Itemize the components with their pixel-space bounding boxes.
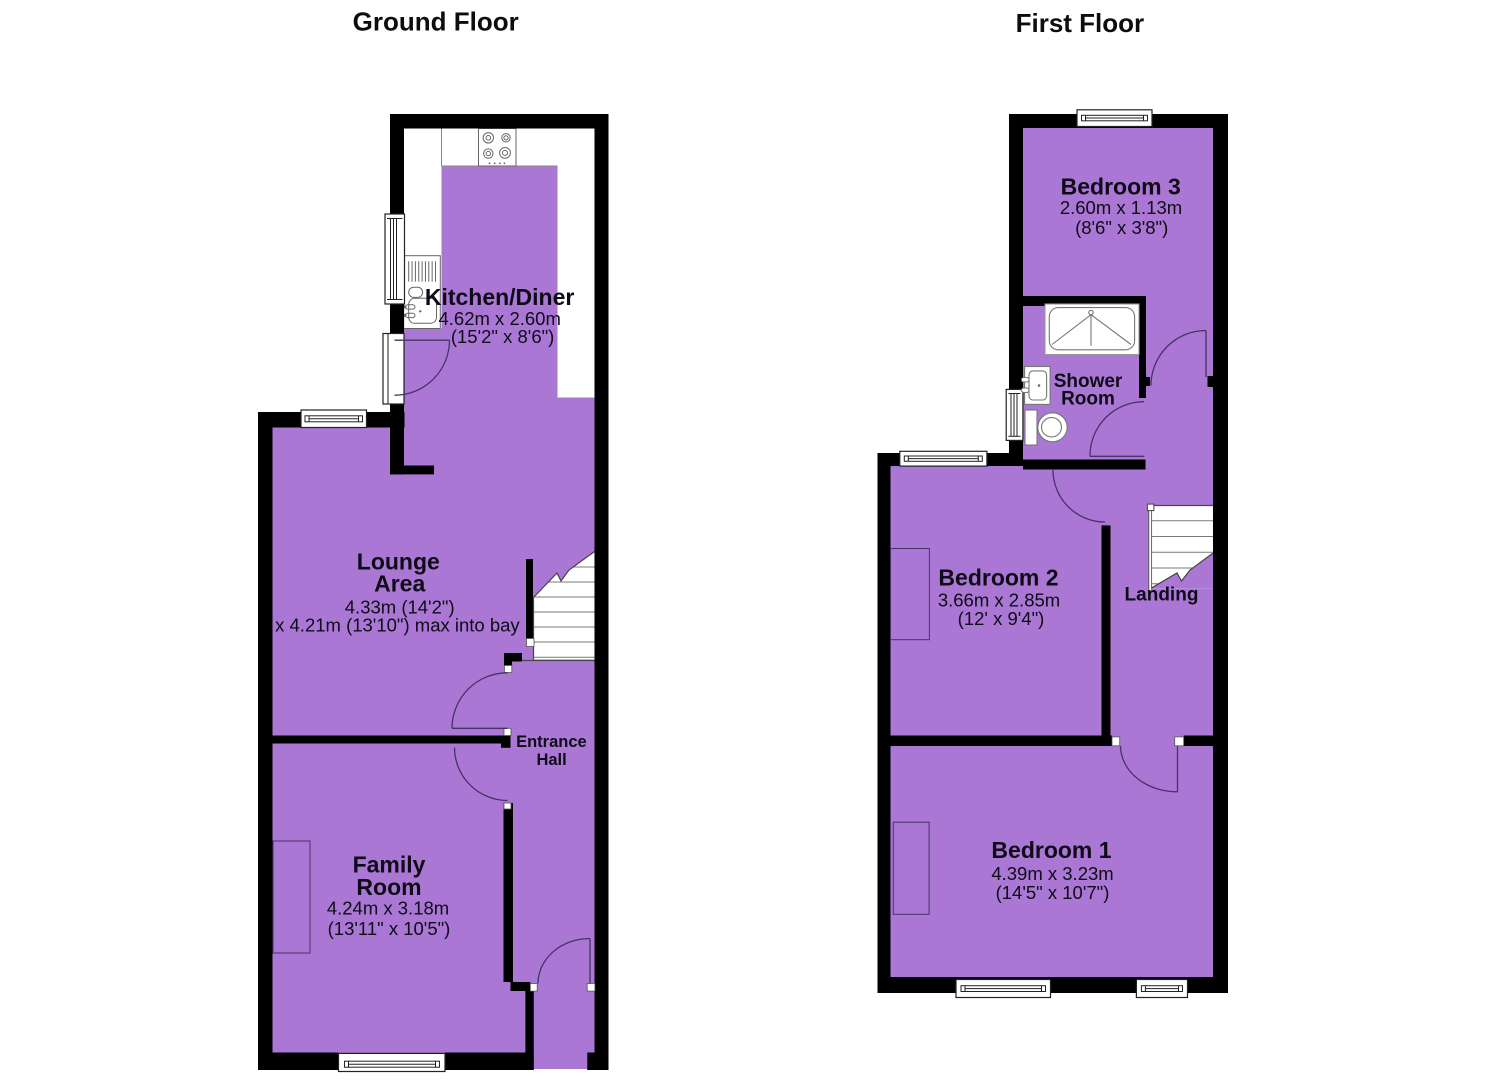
svg-text:Bedroom 3: Bedroom 3 [1061,174,1181,200]
svg-text:Room: Room [1061,388,1115,409]
svg-text:Area: Area [374,570,425,596]
svg-text:Bedroom 2: Bedroom 2 [938,565,1058,591]
svg-text:(14'5" x 10'7"): (14'5" x 10'7") [996,882,1110,903]
svg-text:Ground Floor: Ground Floor [353,7,519,37]
svg-text:4.39m x 3.23m: 4.39m x 3.23m [991,863,1113,884]
svg-text:x 4.21m (13'10") max into bay: x 4.21m (13'10") max into bay [275,615,520,636]
svg-text:Room: Room [356,874,421,900]
svg-text:(13'11" x 10'5"): (13'11" x 10'5") [328,918,451,939]
svg-text:(8'6" x 3'8"): (8'6" x 3'8") [1075,217,1168,238]
svg-text:Entrance: Entrance [516,733,587,751]
svg-text:(15'2" x 8'6"): (15'2" x 8'6") [451,326,555,347]
svg-text:Landing: Landing [1125,585,1199,606]
svg-text:First Floor: First Floor [1016,8,1145,38]
svg-text:Hall: Hall [536,751,566,769]
svg-text:Kitchen/Diner: Kitchen/Diner [425,284,575,310]
svg-text:(12' x 9'4"): (12' x 9'4") [958,608,1045,629]
svg-text:4.24m x 3.18m: 4.24m x 3.18m [327,898,449,919]
svg-text:Bedroom 1: Bedroom 1 [991,837,1111,863]
svg-text:2.60m x 1.13m: 2.60m x 1.13m [1060,197,1182,218]
